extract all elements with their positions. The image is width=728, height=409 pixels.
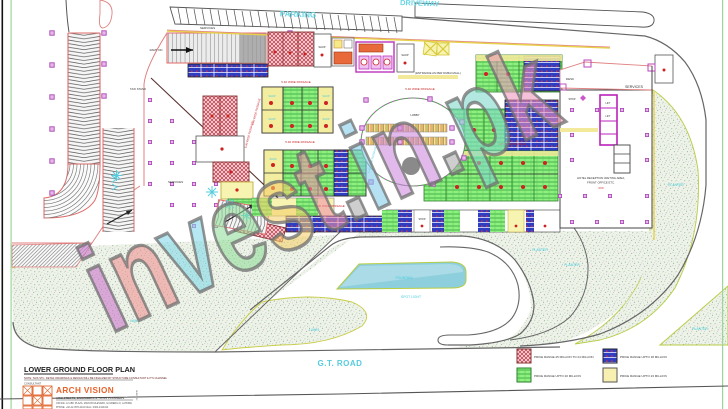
svg-text:PLANTER: PLANTER	[564, 263, 580, 267]
svg-text:G.T. ROAD: G.T. ROAD	[318, 359, 363, 368]
svg-text:CONSULTANT: CONSULTANT	[24, 382, 42, 386]
svg-text:SHOP: SHOP	[568, 98, 575, 101]
svg-text:SERVICES: SERVICES	[200, 26, 215, 30]
svg-text:DRIVEWAY: DRIVEWAY	[400, 0, 440, 8]
svg-text:OFFICE: 12 ABC PLAZA, MAIN BOU: OFFICE: 12 ABC PLAZA, MAIN BOULEVARD, GU…	[56, 402, 132, 405]
svg-text:PRICE RANGE 25 MILLION TO 24 M: PRICE RANGE 25 MILLION TO 24 MILLION	[534, 355, 594, 359]
svg-text:SHOP: SHOP	[268, 94, 276, 98]
svg-text:NOTE: THIS STC. DETAIL DRAWING: NOTE: THIS STC. DETAIL DRAWINGS & DESIGN…	[24, 376, 168, 380]
svg-text:FOUNTAIN: FOUNTAIN	[395, 276, 413, 280]
svg-text:LAWN: LAWN	[309, 328, 319, 332]
svg-text:FRONT OFFICE ETC.: FRONT OFFICE ETC.	[587, 181, 615, 185]
svg-text:DESK: DESK	[566, 77, 574, 81]
svg-text:ARCH VISION: ARCH VISION	[56, 386, 114, 395]
svg-text:XXX: XXX	[598, 186, 604, 190]
svg-text:SHOP: SHOP	[322, 94, 330, 98]
svg-text:TAXI STAND: TAXI STAND	[130, 87, 146, 91]
svg-text:PRICE RANGE UPTO 20 MILLION: PRICE RANGE UPTO 20 MILLION	[534, 374, 581, 378]
svg-text:HOTEL RECEPTION WAITING AREA,: HOTEL RECEPTION WAITING AREA,	[577, 176, 625, 180]
svg-text:LIFT: LIFT	[606, 102, 611, 105]
svg-text:PLANTER: PLANTER	[692, 327, 708, 331]
svg-text:LIFT: LIFT	[606, 115, 611, 118]
svg-text:LOWER GROUND FLOOR PLAN: LOWER GROUND FLOOR PLAN	[24, 365, 135, 374]
svg-text:SPOT LIGHT: SPOT LIGHT	[401, 295, 421, 299]
svg-text:PRICE RANGE UPTO 18 MILLION: PRICE RANGE UPTO 18 MILLION	[620, 355, 667, 359]
svg-text:SERVICES: SERVICES	[625, 85, 644, 89]
svg-text:5.40 WIDE PASSAGE: 5.40 WIDE PASSAGE	[281, 80, 310, 84]
svg-text:PLANTER: PLANTER	[668, 183, 684, 187]
svg-text:SHOP: SHOP	[401, 53, 409, 57]
svg-text:PARKING: PARKING	[280, 9, 317, 19]
svg-text:PRICE RANGE UPTO 23 MILLION: PRICE RANGE UPTO 23 MILLION	[620, 374, 667, 378]
svg-text:PLANTER: PLANTER	[532, 248, 548, 252]
svg-text:SHEET 02: SHEET 02	[135, 390, 137, 401]
svg-text:ARCHITECTS, ENGINEERS & TOWN P: ARCHITECTS, ENGINEERS & TOWN PLANNERS	[56, 396, 124, 400]
svg-text:SHOP: SHOP	[318, 45, 326, 49]
svg-text:SHOP: SHOP	[268, 117, 276, 121]
